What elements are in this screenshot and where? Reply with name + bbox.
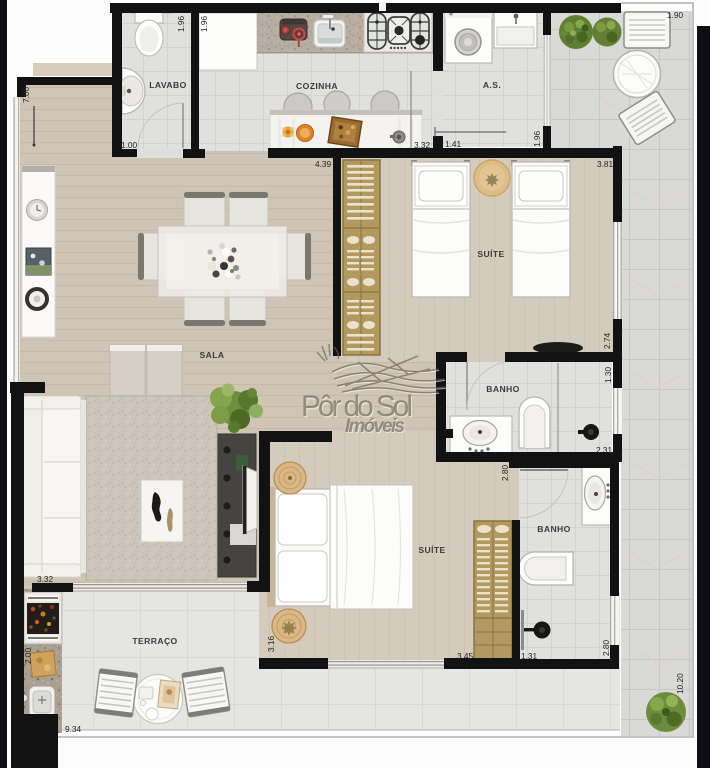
- svg-text:3.32: 3.32: [37, 574, 54, 584]
- svg-text:4.39: 4.39: [315, 159, 332, 169]
- svg-text:2.80: 2.80: [601, 639, 611, 656]
- svg-text:BANHO: BANHO: [486, 384, 520, 394]
- svg-text:9.34: 9.34: [65, 724, 82, 734]
- svg-text:1.96: 1.96: [176, 15, 186, 32]
- svg-text:2.31: 2.31: [596, 445, 613, 455]
- svg-text:LAVABO: LAVABO: [149, 80, 186, 90]
- svg-text:3.16: 3.16: [266, 635, 276, 652]
- svg-text:BANHO: BANHO: [537, 524, 571, 534]
- svg-text:3.32: 3.32: [414, 140, 431, 150]
- svg-text:SALA: SALA: [200, 350, 225, 360]
- svg-text:10.20: 10.20: [675, 673, 685, 694]
- svg-text:1.31: 1.31: [521, 651, 538, 661]
- svg-text:7.00: 7.00: [21, 86, 31, 103]
- svg-text:3.81: 3.81: [597, 159, 614, 169]
- svg-text:1.00: 1.00: [121, 140, 138, 150]
- svg-text:1.90: 1.90: [667, 10, 684, 20]
- svg-text:3.45: 3.45: [457, 651, 474, 661]
- svg-text:A.S.: A.S.: [483, 80, 501, 90]
- svg-text:SUÍTE: SUÍTE: [418, 545, 445, 555]
- svg-text:SUÍTE: SUÍTE: [477, 249, 504, 259]
- svg-text:2.00: 2.00: [23, 647, 33, 664]
- svg-text:1.41: 1.41: [445, 139, 462, 149]
- svg-text:COZINHA: COZINHA: [296, 81, 338, 91]
- svg-text:Imóveis: Imóveis: [345, 416, 405, 437]
- svg-text:1.96: 1.96: [532, 130, 542, 147]
- svg-text:2.80: 2.80: [500, 464, 510, 481]
- svg-text:2.74: 2.74: [602, 332, 612, 349]
- svg-text:1.96: 1.96: [199, 15, 209, 32]
- svg-text:1.30: 1.30: [603, 366, 613, 383]
- svg-text:TERRAÇO: TERRAÇO: [132, 636, 177, 646]
